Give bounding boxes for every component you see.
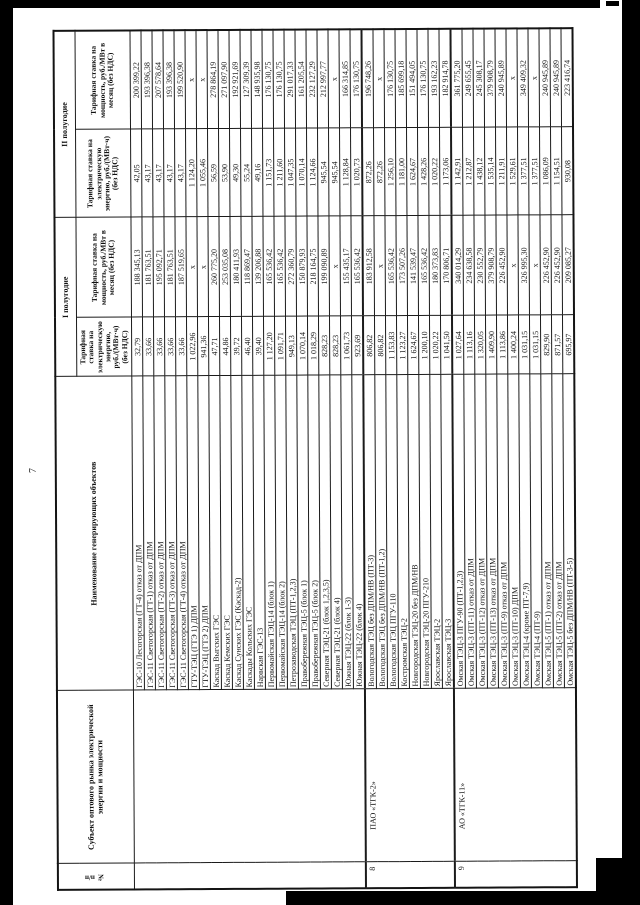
h2-capacity-rate-cell: 151 494,05 — [406, 29, 418, 128]
h2-energy-rate-cell: 1 055,46 — [197, 129, 208, 217]
scan-edge-top — [0, 0, 600, 8]
h2-energy-rate-cell: 930,08 — [562, 127, 574, 215]
h1-energy-rate-cell: 39,40 — [252, 317, 263, 376]
h2-energy-rate-cell: 1 256,10 — [385, 128, 396, 216]
h2-capacity-rate-cell: 192 921,69 — [229, 30, 241, 129]
h2-capacity-rate-cell: 240 945,89 — [550, 28, 562, 127]
h1-capacity-rate-cell: 195 092,71 — [153, 217, 165, 317]
h2-energy-rate-cell: 945,54 — [329, 128, 340, 216]
col-header-capacity-rate-h1: Тарифная ставка на мощность, руб./МВт в … — [76, 217, 132, 317]
h2-energy-rate-cell: 872,26 — [374, 128, 385, 216]
h2-energy-rate-cell: 1 151,73 — [263, 129, 274, 217]
h2-energy-rate-cell: 1 086,09 — [540, 127, 551, 215]
h1-capacity-rate-cell: х — [186, 217, 198, 317]
h1-energy-rate-cell: 33,66 — [142, 317, 153, 376]
h2-capacity-rate-cell: 193 396,38 — [141, 30, 153, 129]
h1-energy-rate-cell: 1 031,15 — [529, 315, 540, 374]
h2-energy-rate-cell: 1 529,61 — [507, 127, 518, 215]
col-header-half2: II полугодие — [53, 31, 75, 218]
h1-capacity-rate-cell: 230 552,79 — [474, 216, 486, 316]
h1-capacity-rate-cell: 218 164,75 — [307, 216, 319, 316]
h1-energy-rate-cell: 941,36 — [197, 317, 208, 376]
h2-energy-rate-cell: 1 211,91 — [496, 127, 507, 215]
h1-capacity-rate-cell: 326 995,30 — [518, 215, 530, 315]
scan-edge-bottom — [286, 891, 640, 905]
h2-energy-rate-cell: 1 212,87 — [463, 128, 474, 216]
h1-energy-rate-cell: 1 061,73 — [340, 316, 351, 375]
h1-energy-rate-cell: 1 018,29 — [307, 316, 318, 375]
h1-energy-rate-cell: 1 041,50 — [440, 316, 452, 375]
h2-energy-rate-cell: 1 428,26 — [418, 128, 429, 216]
h2-energy-rate-cell: 1 020,73 — [351, 128, 363, 216]
h1-capacity-rate-cell: 340 014,29 — [451, 216, 463, 316]
h2-energy-rate-cell: 1 124,20 — [186, 129, 197, 217]
h2-energy-rate-cell: 43,17 — [175, 129, 186, 217]
h2-capacity-rate-cell: 245 308,17 — [473, 29, 485, 128]
h1-energy-rate-cell: 1 113,16 — [463, 316, 474, 375]
h2-capacity-rate-cell: х — [185, 30, 197, 129]
h2-energy-rate-cell: 1 154,51 — [551, 127, 562, 215]
h2-energy-rate-cell: 55,24 — [241, 129, 252, 217]
object-name-cell: Омская ТЭЦ-5 без ДПМ/НВ (ПТ-3-5) — [563, 374, 576, 688]
h1-capacity-rate-cell: 234 638,58 — [463, 216, 475, 316]
h1-capacity-rate-cell: 141 539,47 — [407, 216, 419, 316]
h2-energy-rate-cell: 43,17 — [164, 129, 175, 217]
h2-capacity-rate-cell: х — [528, 28, 540, 127]
h2-energy-rate-cell: 53,90 — [219, 129, 230, 217]
h1-capacity-rate-cell: 188 345,13 — [131, 217, 143, 317]
h2-energy-rate-cell: 1 181,00 — [396, 128, 407, 216]
h1-energy-rate-cell: 871,57 — [551, 315, 562, 374]
h1-energy-rate-cell: 1 027,64 — [452, 316, 464, 375]
h2-energy-rate-cell: 1 624,67 — [407, 128, 418, 216]
h1-capacity-rate-cell: 118 869,47 — [241, 217, 253, 317]
h1-capacity-rate-cell: 181 763,51 — [142, 217, 154, 317]
h1-energy-rate-cell: 1 123,27 — [396, 316, 407, 375]
h1-energy-rate-cell: 33,66 — [164, 317, 175, 376]
h1-capacity-rate-cell: 209 085,27 — [562, 215, 574, 315]
h2-energy-rate-cell: 49,30 — [230, 129, 241, 217]
h1-capacity-rate-cell: х — [507, 215, 519, 315]
h2-capacity-rate-cell: 166 314,85 — [339, 29, 351, 128]
h1-energy-rate-cell: 1 200,10 — [418, 316, 429, 375]
h2-capacity-rate-cell: 148 935,98 — [251, 30, 263, 129]
h2-energy-rate-cell: 945,54 — [318, 128, 329, 216]
scan-edge-left — [0, 6, 13, 905]
h1-capacity-rate-cell: 199 090,89 — [318, 216, 330, 316]
h2-capacity-rate-cell: 193 396,38 — [163, 30, 175, 129]
h2-capacity-rate-cell: 271 097,90 — [218, 30, 230, 129]
h1-capacity-rate-cell: 226 452,90 — [551, 215, 563, 315]
h2-capacity-rate-cell: 291 017,33 — [284, 30, 296, 129]
h1-capacity-rate-cell: 183 912,58 — [362, 216, 374, 316]
h1-energy-rate-cell: 1 153,83 — [385, 316, 396, 375]
h1-energy-rate-cell: 1 020,22 — [429, 316, 440, 375]
h2-capacity-rate-cell: 349 409,32 — [517, 28, 529, 127]
h1-energy-rate-cell: 828,23 — [329, 316, 340, 375]
col-header-energy-rate-h2: Тарифная ставка на электрическую энергию… — [76, 129, 131, 217]
h2-capacity-rate-cell: 379 908,79 — [484, 29, 496, 128]
h2-capacity-rate-cell: 232 127,29 — [306, 29, 318, 128]
col-header-num-label: № п/п — [85, 872, 105, 880]
h1-capacity-rate-cell: 170 806,71 — [440, 216, 452, 316]
h2-energy-rate-cell: 1 128,84 — [340, 128, 351, 216]
h2-capacity-rate-cell: х — [373, 29, 385, 128]
h2-capacity-rate-cell: 212 997,77 — [317, 29, 329, 128]
h2-capacity-rate-cell: 240 945,89 — [539, 28, 551, 127]
h1-energy-rate-cell: 1 070,14 — [296, 317, 307, 376]
h2-capacity-rate-cell: 127 309,39 — [240, 30, 252, 129]
h1-capacity-rate-cell: 155 435,17 — [340, 216, 352, 316]
h2-capacity-rate-cell: х — [196, 30, 208, 129]
h1-energy-rate-cell: 806,82 — [374, 316, 385, 375]
h1-energy-rate-cell: 32,79 — [131, 317, 142, 376]
h2-capacity-rate-cell: 249 655,45 — [462, 29, 474, 128]
page-number: 7 — [28, 468, 39, 473]
h1-capacity-rate-cell: х — [374, 216, 386, 316]
col-header-object: Наименование генерирующих объектов — [55, 376, 133, 690]
h2-energy-rate-cell: 43,17 — [142, 129, 153, 217]
h2-capacity-rate-cell: 240 945,89 — [495, 28, 507, 127]
h2-energy-rate-cell: 1 124,66 — [307, 128, 318, 216]
h2-capacity-rate-cell: 176 130,75 — [262, 30, 274, 129]
h2-capacity-rate-cell: 161 205,54 — [295, 30, 307, 129]
h2-capacity-rate-cell: 185 699,18 — [395, 29, 407, 128]
h1-energy-rate-cell: 1 113,86 — [496, 315, 507, 374]
h2-capacity-rate-cell: 193 162,23 — [428, 29, 440, 128]
h1-energy-rate-cell: 695,97 — [562, 315, 574, 374]
h2-capacity-rate-cell: 200 399,22 — [130, 30, 142, 129]
rotated-document: 7 № п/п Субъект оптового рынка электриче… — [26, 29, 571, 891]
h2-capacity-rate-cell: х — [506, 28, 518, 127]
h2-energy-rate-cell: 1 020,22 — [429, 128, 440, 216]
h1-capacity-rate-cell: х — [197, 217, 209, 317]
h2-capacity-rate-cell: 223 416,74 — [561, 28, 573, 127]
h1-capacity-rate-cell: 150 879,93 — [296, 217, 308, 317]
h2-energy-rate-cell: 1 173,06 — [440, 128, 452, 216]
h2-capacity-rate-cell: 176 130,75 — [384, 29, 396, 128]
h1-energy-rate-cell: 806,82 — [363, 316, 375, 375]
scan-edge-dash — [606, 1, 619, 6]
h1-capacity-rate-cell: х — [329, 216, 341, 316]
row-num-cell: 8 — [366, 862, 455, 888]
h2-energy-rate-cell: 1 377,51 — [518, 127, 529, 215]
h2-energy-rate-cell: 1 211,60 — [274, 129, 285, 217]
h2-capacity-rate-cell: 207 578,64 — [152, 30, 164, 129]
h1-energy-rate-cell: 47,71 — [208, 317, 219, 376]
h2-capacity-rate-cell: 176 130,75 — [273, 30, 285, 129]
h2-capacity-rate-cell: 361 775,20 — [450, 29, 462, 128]
h1-energy-rate-cell: 1 409,90 — [485, 316, 496, 375]
h1-energy-rate-cell: 44,86 — [219, 317, 230, 376]
h1-energy-rate-cell: 1 320,05 — [474, 316, 485, 375]
h2-capacity-rate-cell: 182 914,78 — [439, 29, 451, 128]
h1-capacity-rate-cell: 187 519,65 — [175, 217, 187, 317]
scan-edge-right — [622, 0, 640, 905]
h1-energy-rate-cell: 39,72 — [230, 317, 241, 376]
h1-capacity-rate-cell: 226 452,90 — [496, 215, 508, 315]
h2-capacity-rate-cell: 196 748,26 — [361, 29, 373, 128]
h1-energy-rate-cell: 1 091,71 — [274, 317, 285, 376]
h2-energy-rate-cell: 1 535,14 — [485, 128, 496, 216]
col-header-energy-rate-h1: Тарифная ставка на электрическую энергию… — [76, 317, 131, 376]
h1-capacity-rate-cell: 260 775,20 — [208, 217, 220, 317]
col-header-num: № п/п — [58, 863, 135, 889]
h1-capacity-rate-cell: 181 763,51 — [164, 217, 176, 317]
h2-energy-rate-cell: 56,59 — [208, 129, 219, 217]
col-header-capacity-rate-h2: Тарифная ставка на мощность, руб./МВт в … — [75, 30, 131, 129]
h1-capacity-rate-cell: 272 360,79 — [285, 217, 297, 317]
col-header-subject: Субъект оптового рынка электрической эне… — [57, 690, 134, 863]
tariff-table: № п/п Субъект оптового рынка электрическ… — [52, 27, 578, 891]
h1-capacity-rate-cell: 165 536,42 — [274, 217, 286, 317]
subject-cell: АО «ТГК-11» — [454, 688, 577, 862]
h1-capacity-rate-cell: 165 536,42 — [385, 216, 397, 316]
h2-capacity-rate-cell: х — [328, 29, 340, 128]
h2-energy-rate-cell: 49,16 — [252, 129, 263, 217]
h1-energy-rate-cell: 33,66 — [153, 317, 164, 376]
h1-capacity-rate-cell: 226 452,90 — [540, 215, 552, 315]
h1-capacity-rate-cell: 165 536,42 — [418, 216, 430, 316]
h2-energy-rate-cell: 43,17 — [153, 129, 164, 217]
h2-energy-rate-cell: 1 377,51 — [529, 127, 540, 215]
h1-capacity-rate-cell: 253 035,08 — [219, 217, 231, 317]
h2-energy-rate-cell: 1 142,91 — [451, 128, 463, 216]
h2-energy-rate-cell: 42,05 — [131, 129, 142, 217]
h2-energy-rate-cell: 1 070,14 — [296, 129, 307, 217]
h2-capacity-rate-cell: 199 520,90 — [174, 30, 186, 129]
h1-energy-rate-cell: 829,90 — [540, 315, 551, 374]
h1-capacity-rate-cell: 139 206,88 — [252, 217, 264, 317]
h1-capacity-rate-cell: х — [529, 215, 541, 315]
h2-capacity-rate-cell: 176 130,75 — [350, 29, 362, 128]
h1-energy-rate-cell: 1 624,67 — [407, 316, 418, 375]
h1-capacity-rate-cell: 180 373,83 — [429, 216, 441, 316]
row-num-cell: 9 — [455, 861, 577, 888]
h2-energy-rate-cell: 1 047,35 — [285, 129, 296, 217]
row-num-cell — [134, 862, 366, 889]
h1-energy-rate-cell: 1 031,15 — [518, 315, 529, 374]
scan-edge-corner — [596, 858, 636, 905]
h1-energy-rate-cell: 828,23 — [318, 316, 329, 375]
h1-capacity-rate-cell: 180 411,93 — [230, 217, 242, 317]
h1-energy-rate-cell: 46,40 — [241, 317, 252, 376]
col-header-half1: I полугодие — [54, 218, 76, 377]
h1-energy-rate-cell: 1 400,24 — [507, 315, 518, 374]
h1-energy-rate-cell: 949,13 — [285, 317, 296, 376]
subject-cell: ПАО «ТГК-2» — [365, 689, 455, 862]
subject-cell — [133, 689, 365, 863]
h1-capacity-rate-cell: 379 908,79 — [485, 216, 497, 316]
h1-energy-rate-cell: 923,69 — [351, 316, 363, 375]
h2-capacity-rate-cell: 176 130,75 — [417, 29, 429, 128]
h1-capacity-rate-cell: 165 536,42 — [351, 216, 363, 316]
h2-capacity-rate-cell: 278 864,19 — [207, 30, 219, 129]
h2-energy-rate-cell: 1 438,12 — [474, 128, 485, 216]
h1-energy-rate-cell: 1 022,96 — [186, 317, 197, 376]
h1-capacity-rate-cell: 165 536,42 — [263, 217, 275, 317]
h1-energy-rate-cell: 33,66 — [175, 317, 186, 376]
h1-capacity-rate-cell: 173 507,26 — [396, 216, 408, 316]
h2-energy-rate-cell: 872,26 — [362, 128, 374, 216]
h1-energy-rate-cell: 1 127,20 — [263, 317, 274, 376]
